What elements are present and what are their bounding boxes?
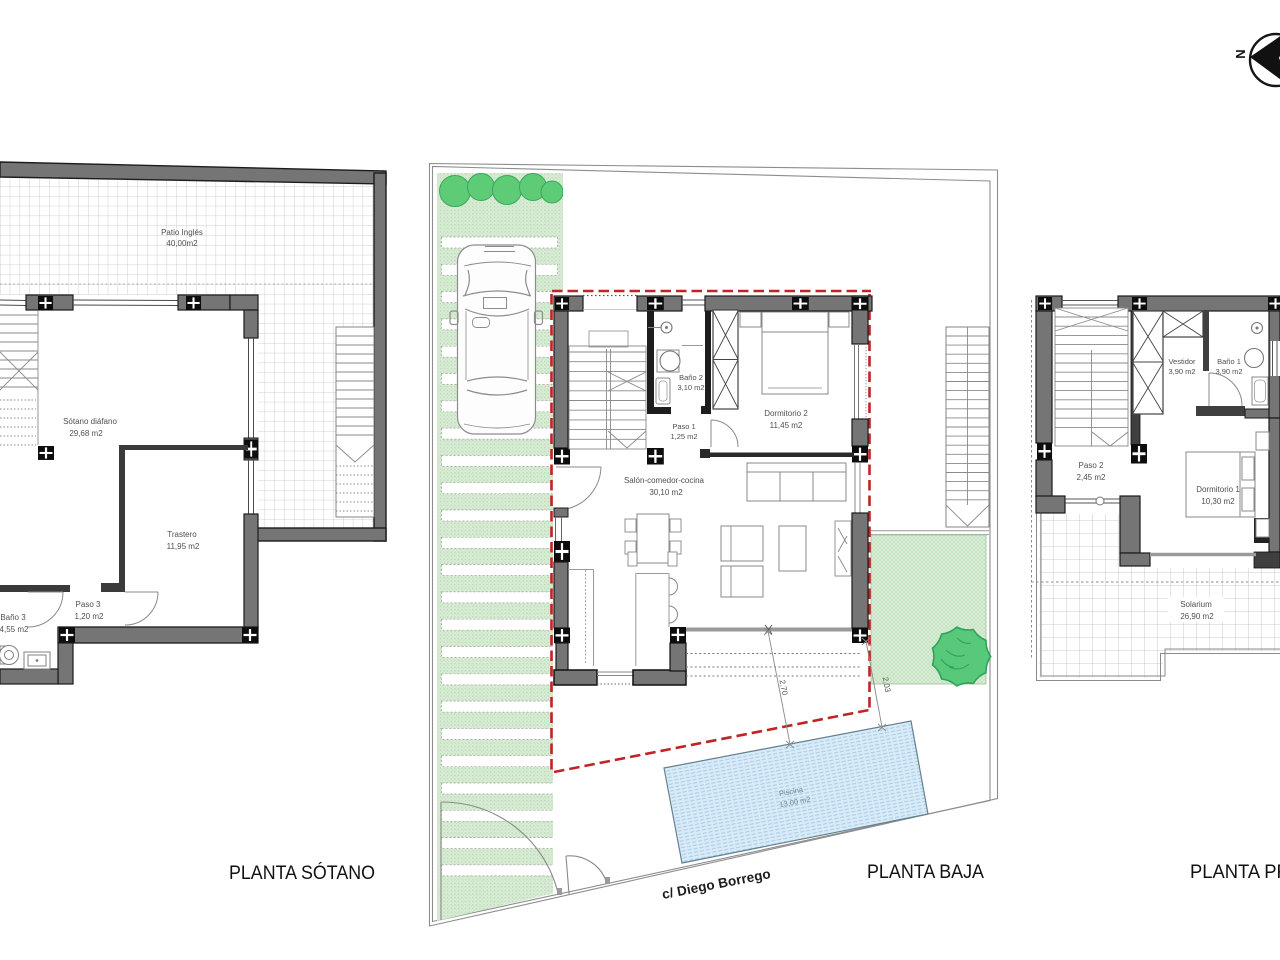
- svg-text:Paso 1: Paso 1: [672, 422, 695, 431]
- svg-text:3,10 m2: 3,10 m2: [677, 383, 704, 392]
- svg-text:PLANTA PRIMERA: PLANTA PRIMERA: [1190, 861, 1280, 883]
- svg-text:4,55 m2: 4,55 m2: [0, 625, 29, 634]
- svg-text:Vestidor: Vestidor: [1168, 357, 1196, 366]
- svg-text:Sótano diáfano: Sótano diáfano: [63, 417, 117, 426]
- svg-text:3,90 m2: 3,90 m2: [1168, 367, 1195, 376]
- svg-text:N: N: [1233, 49, 1248, 58]
- svg-text:10,30 m2: 10,30 m2: [1201, 497, 1235, 506]
- svg-text:Dormitorio 1: Dormitorio 1: [1196, 485, 1240, 494]
- svg-text:1,20 m2: 1,20 m2: [75, 612, 104, 621]
- svg-text:30,10 m2: 30,10 m2: [649, 488, 683, 497]
- svg-text:Baño 1: Baño 1: [1217, 357, 1241, 366]
- svg-text:Paso 2: Paso 2: [1079, 461, 1104, 470]
- svg-text:2,45 m2: 2,45 m2: [1077, 473, 1106, 482]
- svg-text:Baño 2: Baño 2: [679, 373, 703, 382]
- svg-text:Salón-comedor-cocina: Salón-comedor-cocina: [624, 476, 705, 485]
- svg-text:26,90 m2: 26,90 m2: [1180, 612, 1214, 621]
- svg-text:3,90 m2: 3,90 m2: [1215, 367, 1242, 376]
- svg-text:Solarium: Solarium: [1180, 600, 1212, 609]
- svg-text:29,68 m2: 29,68 m2: [69, 429, 103, 438]
- svg-text:Baño 3: Baño 3: [0, 613, 26, 622]
- svg-text:40,00m2: 40,00m2: [166, 239, 198, 248]
- svg-text:Dormitorio 2: Dormitorio 2: [764, 409, 808, 418]
- svg-text:Paso 3: Paso 3: [76, 600, 101, 609]
- svg-text:11,45 m2: 11,45 m2: [770, 421, 803, 430]
- svg-text:Patio Inglés: Patio Inglés: [161, 228, 203, 237]
- svg-text:11,95 m2: 11,95 m2: [167, 542, 200, 551]
- svg-text:1,25 m2: 1,25 m2: [670, 432, 697, 441]
- svg-text:Trastero: Trastero: [167, 530, 197, 539]
- svg-text:PLANTA BAJA: PLANTA BAJA: [867, 861, 984, 883]
- svg-text:PLANTA SÓTANO: PLANTA SÓTANO: [229, 861, 375, 884]
